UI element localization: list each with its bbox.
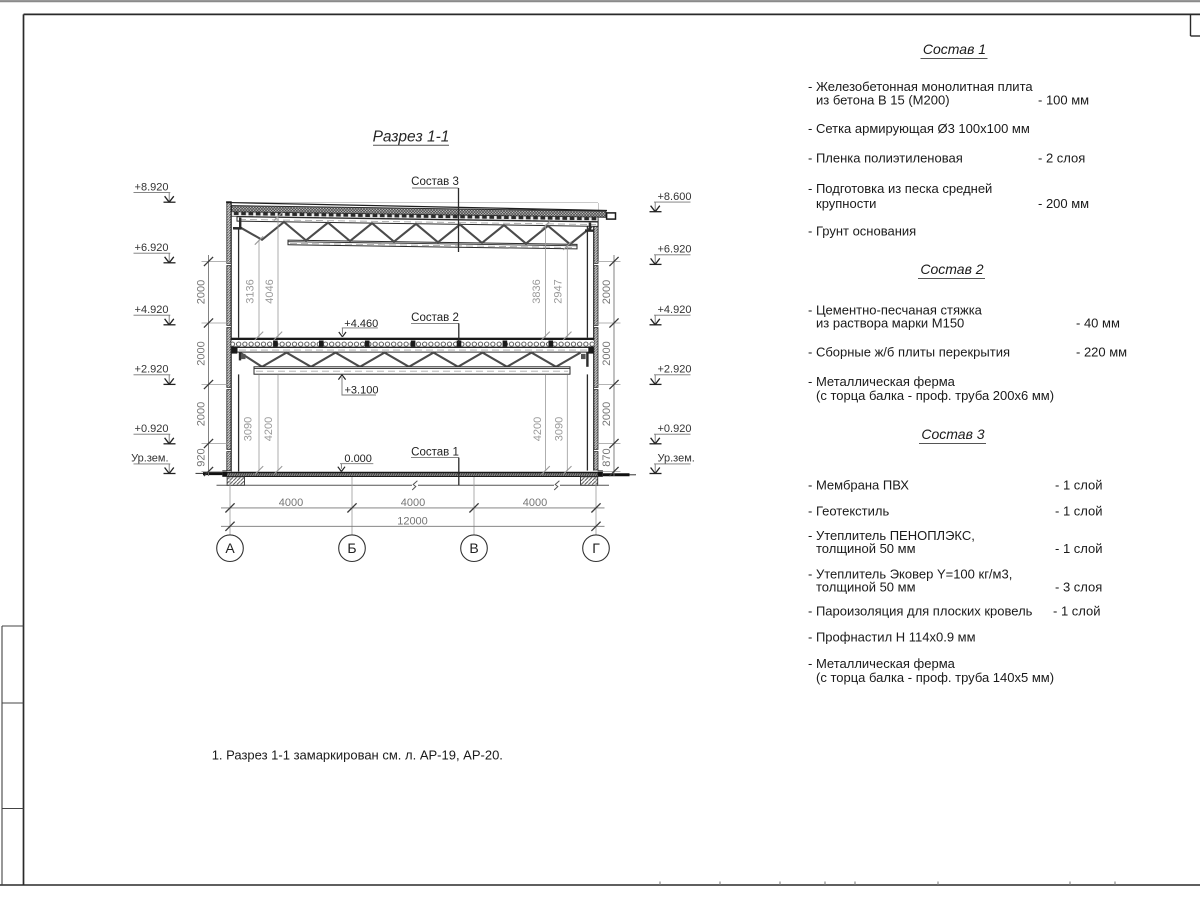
svg-text:- 1 слой: - 1 слой — [1053, 604, 1101, 619]
svg-text:- 3 слоя: - 3 слоя — [1055, 579, 1102, 594]
svg-text:4200: 4200 — [532, 417, 544, 441]
svg-text:2000: 2000 — [196, 280, 208, 304]
svg-text:Разрез 1-1: Разрез 1-1 — [373, 129, 450, 146]
svg-text:- 220 мм: - 220 мм — [1076, 345, 1127, 360]
svg-text:(с торца балка - проф. труба 2: (с торца балка - проф. труба 200х6 мм) — [816, 388, 1054, 403]
svg-text:Б: Б — [347, 540, 356, 556]
svg-text:Состав 1: Состав 1 — [923, 41, 986, 57]
svg-text:Ур.зем.: Ур.зем. — [131, 453, 168, 465]
svg-text:4200: 4200 — [263, 417, 275, 441]
svg-text:+2.920: +2.920 — [658, 364, 692, 376]
svg-text:- Профнастил Н 114х0.9 мм: - Профнастил Н 114х0.9 мм — [808, 630, 976, 645]
svg-text:- Пароизоляция для плоских кро: - Пароизоляция для плоских кровель — [808, 604, 1033, 619]
svg-text:Ур.зем.: Ур.зем. — [658, 453, 695, 465]
svg-text:Г: Г — [592, 540, 600, 556]
svg-text:4000: 4000 — [401, 497, 425, 509]
svg-text:- Сетка армирующая Ø3 100х100: - Сетка армирующая Ø3 100х100 мм — [808, 121, 1030, 136]
svg-text:3090: 3090 — [242, 417, 254, 441]
svg-text:толщиной 50 мм: толщиной 50 мм — [816, 541, 916, 556]
svg-text:- 200 мм: - 200 мм — [1038, 196, 1089, 211]
svg-text:толщиной 50 мм: толщиной 50 мм — [816, 579, 916, 594]
svg-text:из раствора марки М150: из раствора марки М150 — [816, 315, 964, 330]
svg-text:- 40 мм: - 40 мм — [1076, 315, 1120, 330]
svg-text:- Грунт основания: - Грунт основания — [808, 223, 916, 238]
svg-text:- 1 слой: - 1 слой — [1055, 478, 1103, 493]
svg-text:- Металлическая ферма: - Металлическая ферма — [808, 374, 956, 389]
svg-text:- 100 мм: - 100 мм — [1038, 92, 1089, 107]
svg-text:3836: 3836 — [531, 279, 543, 303]
svg-text:+8.920: +8.920 — [135, 181, 169, 193]
svg-text:4000: 4000 — [523, 497, 547, 509]
svg-text:Состав 3: Состав 3 — [921, 426, 984, 442]
svg-text:3090: 3090 — [554, 417, 566, 441]
svg-text:2000: 2000 — [601, 341, 613, 365]
svg-text:- Геотекстиль: - Геотекстиль — [808, 504, 889, 519]
svg-text:- 1 слой: - 1 слой — [1055, 541, 1103, 556]
svg-text:Состав 2: Состав 2 — [920, 261, 983, 277]
svg-text:- Пленка полиэтиленовая: - Пленка полиэтиленовая — [808, 151, 963, 166]
svg-text:2000: 2000 — [196, 402, 208, 426]
svg-text:3136: 3136 — [244, 279, 256, 303]
svg-text:+0.920: +0.920 — [658, 423, 692, 435]
svg-text:1. Разрез 1-1 замаркирован см.: 1. Разрез 1-1 замаркирован см. л. АР-19,… — [212, 748, 503, 763]
svg-text:из бетона В 15 (М200): из бетона В 15 (М200) — [816, 92, 950, 107]
svg-text:+2.920: +2.920 — [135, 364, 169, 376]
svg-text:2947: 2947 — [552, 279, 564, 303]
svg-text:4046: 4046 — [264, 279, 276, 303]
svg-text:крупности: крупности — [816, 196, 876, 211]
svg-text:870: 870 — [601, 448, 613, 466]
svg-text:- Подготовка из песка средней: - Подготовка из песка средней — [808, 181, 992, 196]
svg-text:+6.920: +6.920 — [658, 244, 692, 256]
svg-text:+6.920: +6.920 — [135, 242, 169, 254]
svg-text:2000: 2000 — [196, 341, 208, 365]
svg-text:Состав 1: Состав 1 — [411, 446, 459, 458]
svg-text:Состав 2: Состав 2 — [411, 312, 459, 324]
svg-text:(с торца балка - проф. труба 1: (с торца балка - проф. труба 140х5 мм) — [816, 670, 1054, 685]
svg-text:- 2 слоя: - 2 слоя — [1038, 151, 1085, 166]
svg-text:+4.920: +4.920 — [658, 304, 692, 316]
svg-text:+4.920: +4.920 — [135, 304, 169, 316]
svg-text:2000: 2000 — [601, 402, 613, 426]
svg-text:920: 920 — [196, 448, 208, 466]
svg-text:А: А — [225, 540, 235, 556]
svg-text:- 1 слой: - 1 слой — [1055, 504, 1103, 519]
svg-text:+0.920: +0.920 — [135, 423, 169, 435]
svg-text:- Металлическая ферма: - Металлическая ферма — [808, 656, 956, 671]
svg-text:- Сборные ж/б плиты перекрытия: - Сборные ж/б плиты перекрытия — [808, 345, 1010, 360]
svg-text:Состав 3: Состав 3 — [411, 176, 459, 188]
svg-text:12000: 12000 — [397, 516, 428, 528]
svg-text:- Мембрана ПВХ: - Мембрана ПВХ — [808, 478, 909, 493]
svg-text:В: В — [469, 540, 478, 556]
svg-text:4000: 4000 — [279, 497, 303, 509]
svg-text:2000: 2000 — [601, 280, 613, 304]
svg-text:0.000: 0.000 — [344, 453, 372, 465]
svg-text:+8.600: +8.600 — [658, 191, 692, 203]
